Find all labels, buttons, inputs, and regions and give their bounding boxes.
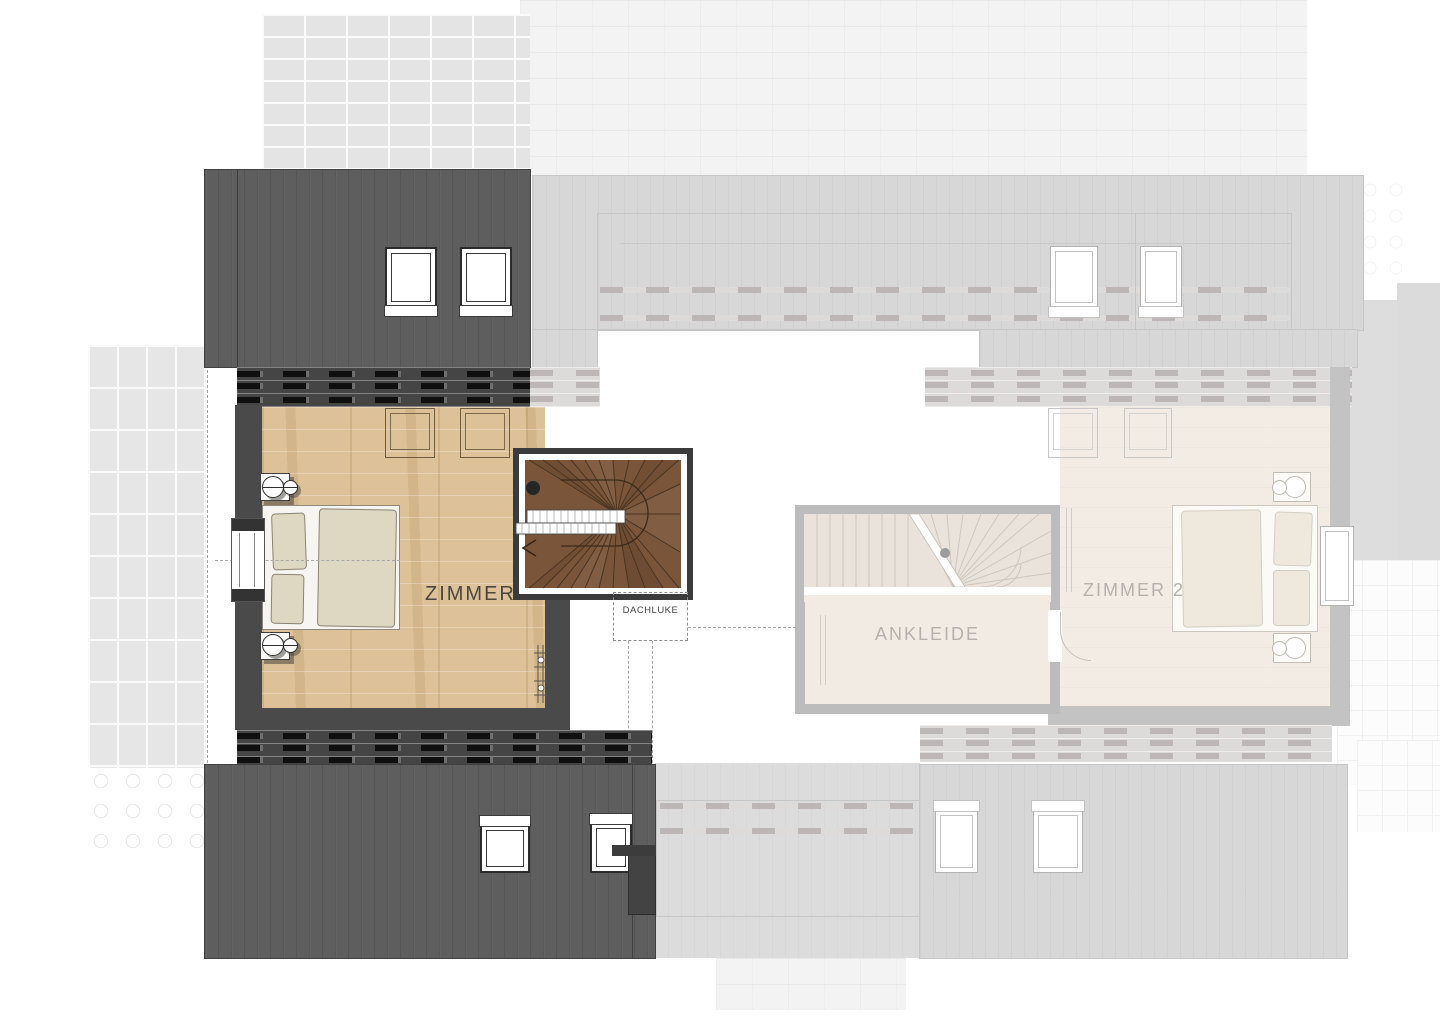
gravel-texture-left [88,768,218,852]
guide-line-horizontal [688,627,796,629]
zimmer-wardrobe [385,408,435,458]
stair-handrail [516,510,625,534]
zimmer-lamp-line [263,645,297,646]
zimmer-lamp-line [263,487,297,488]
floor-plan-canvas: ZIMMER 2 [0,0,1440,1018]
zimmer2-duvet [1181,509,1263,627]
zimmer2-window [1320,526,1354,606]
neighbor-dormer-outline [597,213,1292,330]
neighbor-roof-window [935,810,978,873]
zimmer2-wardrobe [1124,408,1172,458]
background-brick-texture-top [520,0,1307,176]
zimmer2-lamp-knob [1272,641,1287,656]
neighbor-roof-bottom [920,765,1347,958]
zimmer-wardrobe [460,408,510,458]
neighbor-dormer-inner-line [620,243,1292,244]
dachluke-label: DACHLUKE [623,605,679,616]
neighbor-dormer-outline-bottom [656,800,920,917]
roof-bottom [205,765,655,958]
stair-newel [526,481,540,495]
guide-line-vertical [652,641,654,763]
zimmer2-pillow [1273,511,1313,566]
zimmer-window-left [231,518,265,602]
zimmer-duvet [317,508,397,627]
gravel-texture-right [1358,178,1402,284]
neighbor-wall-band-bottom [920,725,1332,762]
zimmer2-lamp-knob [1272,480,1287,495]
wall-band-top [237,367,530,407]
staircase [513,448,693,600]
zimmer2-label: ZIMMER 2 [1083,580,1243,601]
roof-fold-line [237,170,238,367]
neighbor-roof-window [1140,246,1182,308]
zimmer-radiator [533,645,549,703]
zimmer2-bottom-wall [1048,706,1350,726]
brick-texture-top-left [262,14,530,172]
neighbor-staircase [795,505,1060,602]
zimmer2-radiator [1066,508,1072,592]
zimmer2-wardrobe [1048,408,1098,458]
neighbor-dormer-dash-row [600,287,1290,293]
neighbor-roof-top-left-ext [533,330,597,367]
zimmer2-pillow [1273,570,1310,626]
ankleide-room: ANKLEIDE [795,602,1060,714]
ankleide-radiator [820,615,826,685]
chimney-bar [612,845,656,856]
neighbor-roof-window [1050,246,1098,308]
wall-band-bottom [237,730,652,765]
roof-window [385,247,437,308]
zimmer-bottom-wall [235,708,570,730]
ankleide-label: ANKLEIDE [805,624,1050,645]
terrace-grid-right-lower [1357,740,1440,832]
neighbor-wall-band-top [925,367,1352,407]
neighbor-dormer-dash-row [660,828,913,834]
neighbor-roof-top-right-ext [980,330,1357,367]
paving-texture-left [88,345,206,768]
roof-window [480,824,530,873]
paving-edge-line [207,345,209,768]
neighbor-dormer-dash-row [660,803,913,809]
neighbor-wall-band-top-left [530,367,600,407]
roof-window [460,247,512,308]
zimmer-pillow [271,574,305,625]
neighbor-ridge-line [1135,213,1136,330]
dachluke-box: DACHLUKE [613,592,688,641]
zimmer2-lamp [1284,476,1306,498]
neighbor-roof-window [1033,810,1083,873]
zimmer2-lamp [1284,637,1306,659]
neighbor-stair-newel [940,548,950,558]
neighbor-dormer-dash-row [600,315,1290,321]
brick-texture-bottom-middle [716,958,906,1010]
